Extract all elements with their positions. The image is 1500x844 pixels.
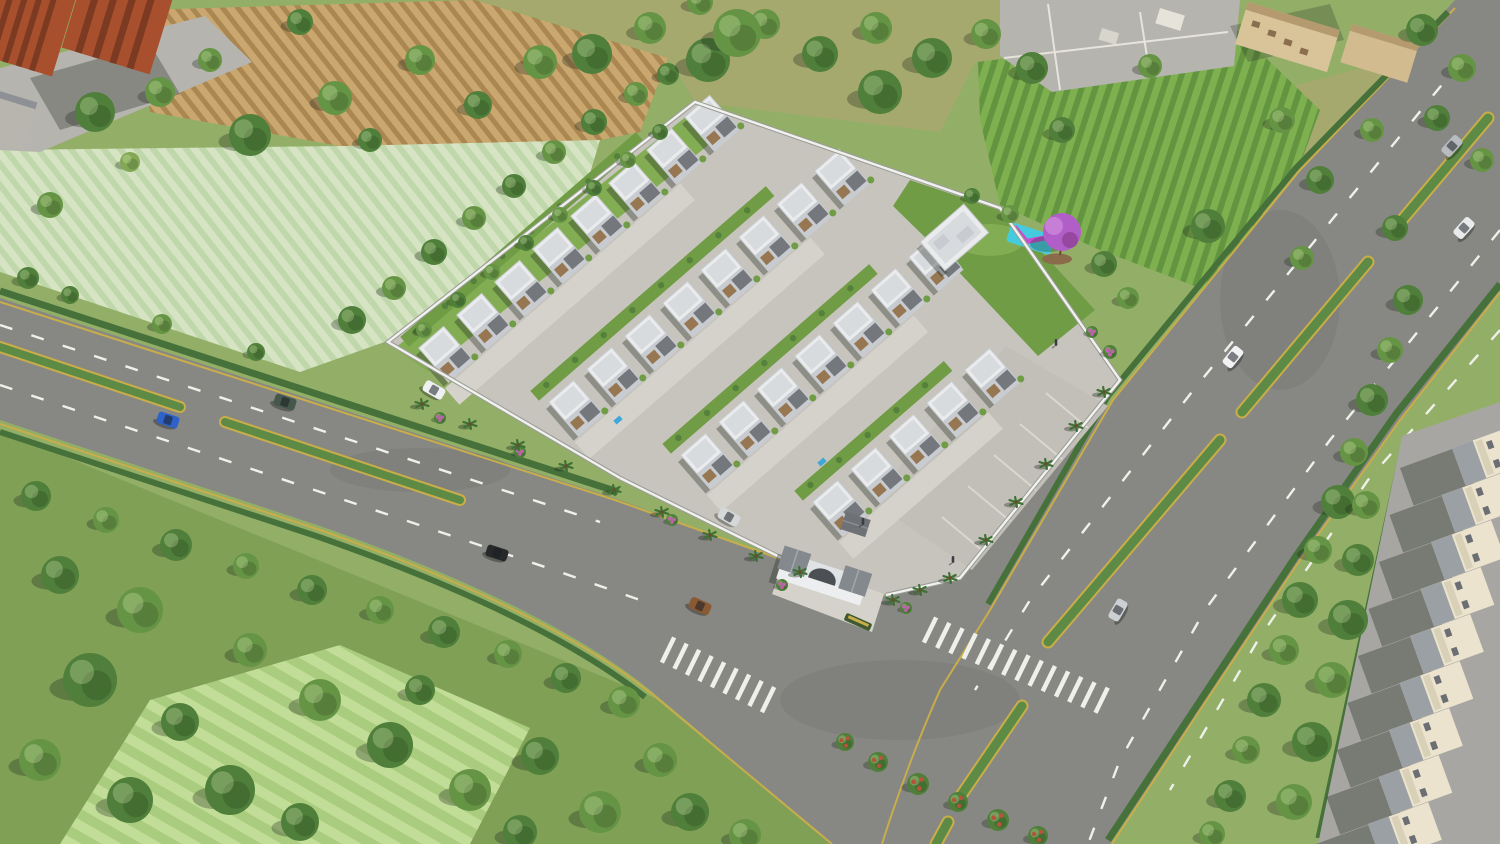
canopy-light [588,182,595,189]
canopy-light [1281,789,1297,805]
palm-trunk [516,443,519,446]
canopy-light [486,266,493,273]
canopy-light [733,823,747,837]
canopy-light [370,600,383,613]
canopy-light [1003,207,1011,215]
canopy-light [20,270,30,280]
canopy-light [527,49,542,64]
pink-flowers [778,582,782,586]
pink-flowers [518,452,522,456]
aerial-render: Aerial 3D render of a gated villa townsh… [0,0,1500,844]
palm-trunk [918,588,921,591]
canopy-light [361,131,372,142]
canopy-light [864,16,878,30]
canopy-light [1360,388,1374,402]
canopy-light [1344,442,1357,455]
canopy-light [249,345,257,353]
canopy-light [25,485,39,499]
canopy-light [545,143,556,154]
palm-trunk [660,510,663,513]
canopy-light [1141,57,1152,68]
canopy-light [465,209,476,220]
canopy-light [80,97,98,115]
canopy-light [975,23,989,37]
canopy-light [647,747,662,762]
canopy-light [290,12,302,24]
palm-trunk [708,533,711,536]
canopy-light [237,637,252,652]
pink-flowers [1105,348,1109,352]
canopy-light [1319,667,1335,683]
canopy-light [1297,727,1315,745]
palm-trunk [891,598,894,601]
asphalt-patch [780,660,1020,740]
canopy-light [1052,120,1064,132]
canopy-light [24,744,43,763]
canopy-light [149,81,163,95]
red-flowers [1037,838,1041,842]
red-flowers [877,764,881,768]
canopy-light [1410,18,1424,32]
red-flowers [952,798,956,802]
canopy-light [807,41,823,57]
canopy-light [123,593,144,614]
canopy-light [322,85,337,100]
red-flowers [911,779,916,784]
canopy-light [418,324,425,331]
palm-trunk [984,538,987,541]
canopy-light [409,49,423,63]
canopy-light [1287,587,1303,603]
palm-trunk [1074,424,1077,427]
canopy-light [70,660,94,684]
canopy-light [654,126,661,133]
palm-trunk [754,554,757,557]
purple-canopy-light [1045,217,1063,235]
red-flowers [991,815,996,820]
canopy-light [554,209,561,216]
red-flowers [1032,832,1036,836]
canopy-light [342,310,355,323]
canopy-light [1385,218,1397,230]
palm-trunk [612,488,615,491]
red-flowers [846,736,850,740]
canopy-light [1333,605,1351,623]
pink-flowers [670,520,674,524]
canopy-light [1397,289,1411,303]
canopy-light [1346,548,1360,562]
pink-flowers [904,608,908,612]
canopy-light [452,294,459,301]
red-flowers [844,744,848,748]
canopy-light [526,742,543,759]
canopy-light [63,288,71,296]
canopy-light [236,556,248,568]
canopy-light [432,620,446,634]
canopy-light [123,155,132,164]
pink-flowers [1108,352,1112,356]
palm-trunk [1102,390,1105,393]
pink-flowers [1088,329,1092,333]
palm-trunk [468,422,471,425]
canopy-light [520,237,527,244]
canopy-light [507,819,522,834]
canopy-light [409,679,423,693]
red-flowers [879,756,883,760]
canopy-light [577,39,595,57]
canopy-light [373,728,394,749]
palm-trunk [564,464,567,467]
canopy-light [40,195,52,207]
canopy-light [660,66,670,76]
canopy-light [1473,151,1484,162]
palm-trunk [798,570,801,573]
pink-flowers [1090,332,1094,336]
canopy-light [1236,740,1249,753]
canopy-light [304,684,323,703]
canopy-light [201,51,212,62]
red-flowers [999,813,1004,818]
canopy-light [627,85,638,96]
purple-canopy-dark [1062,232,1078,248]
canopy-light [676,798,693,815]
palm-trunk [420,402,423,405]
canopy-light [385,279,396,290]
pink-flowers [436,415,440,419]
canopy-light [1202,824,1214,836]
palm-trunk [1014,500,1017,503]
palm-trunk [1044,462,1047,465]
red-flowers [1039,830,1043,834]
canopy-light [1452,58,1465,71]
canopy-light [1195,213,1210,228]
canopy-light [164,533,178,547]
red-flowers [917,786,922,791]
tree-bed [1042,254,1072,265]
canopy-light [864,76,884,96]
canopy-light [1308,540,1321,553]
canopy-light [1120,290,1130,300]
red-flowers [919,777,924,782]
canopy-light [1380,340,1392,352]
red-flowers [997,822,1002,827]
canopy-light [1272,110,1284,122]
canopy-light [1363,121,1374,132]
red-flowers [959,796,963,800]
canopy-light [917,43,935,61]
canopy-light [638,16,652,30]
canopy-light [1325,489,1340,504]
canopy-light [498,644,511,657]
canopy-light [1094,254,1106,266]
canopy-light [155,317,164,326]
canopy-light [424,242,436,254]
pink-flowers [780,585,784,589]
red-flowers [872,758,876,762]
red-flowers [839,738,843,742]
canopy-light [555,667,569,681]
canopy-light [1310,170,1323,183]
canopy-light [1251,687,1266,702]
canopy-light [286,808,303,825]
canopy-light [966,190,973,197]
canopy-light [1293,249,1304,260]
canopy-light [96,510,108,522]
canopy-light [612,690,626,704]
canopy-light [166,708,183,725]
canopy-light [622,154,629,161]
canopy-light [46,561,63,578]
canopy-light [113,783,134,804]
scene-svg: Aerial 3D render of a gated villa townsh… [0,0,1500,844]
canopy-light [584,112,596,124]
canopy-light [584,796,603,815]
canopy-light [505,177,516,188]
canopy-light [468,95,481,108]
canopy-light [301,579,315,593]
canopy-light [1218,784,1232,798]
pink-flowers [668,517,672,521]
palm-trunk [948,576,951,579]
red-flowers [957,804,961,808]
pink-flowers [902,605,906,609]
pink-flowers [438,418,442,422]
canopy-light [1020,56,1034,70]
canopy-light [1273,639,1287,653]
canopy-light [719,15,741,37]
canopy-light [454,774,473,793]
canopy-light [211,771,234,794]
canopy-light [1356,495,1369,508]
canopy-light [1427,108,1439,120]
canopy-light [234,119,253,138]
